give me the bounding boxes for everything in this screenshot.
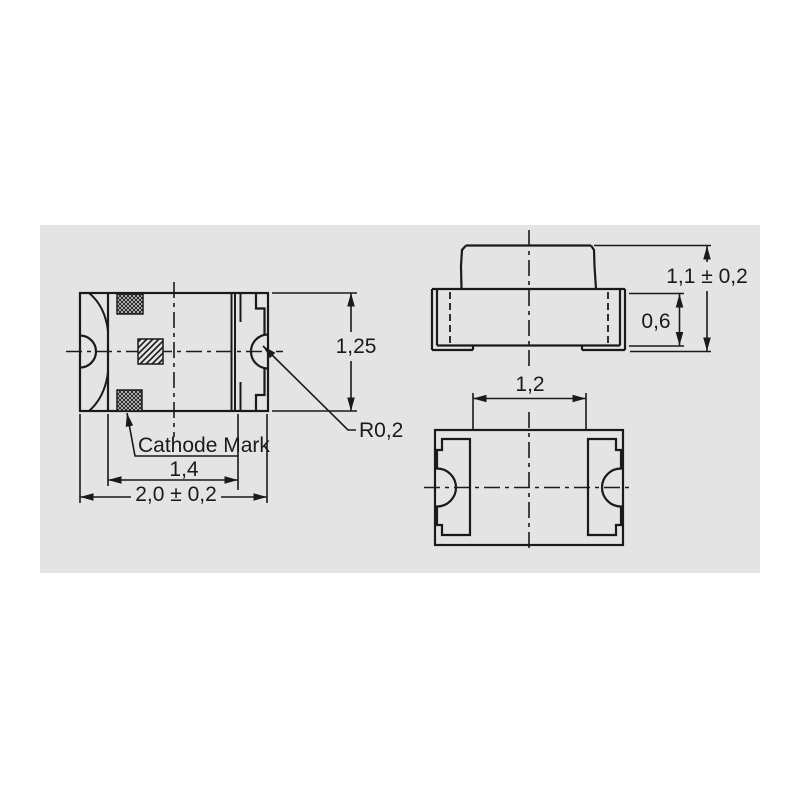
cathode-mark-square-top bbox=[117, 294, 143, 314]
screenshot-root: 1,25 R0,2 Cathode Mark 1,4 2,0 ± 0,2 bbox=[0, 0, 800, 800]
dim-label-overall-length: 2,0 ± 0,2 bbox=[135, 483, 217, 506]
cathode-mark-label: Cathode Mark bbox=[138, 434, 270, 457]
dim-label-overall-height: 1,1 ± 0,2 bbox=[666, 265, 748, 288]
dim-label-body-height: 0,6 bbox=[641, 310, 670, 333]
dim-label-radius: R0,2 bbox=[359, 419, 403, 442]
dim-label-terminal-span: 1,4 bbox=[169, 458, 199, 481]
dim-label-height: 1,25 bbox=[336, 335, 377, 358]
cathode-mark-square-bottom bbox=[117, 390, 142, 411]
technical-drawing: 1,25 R0,2 Cathode Mark 1,4 2,0 ± 0,2 bbox=[0, 0, 800, 800]
dim-label-pad-spacing: 1,2 bbox=[515, 373, 544, 396]
chip-die-square bbox=[138, 339, 163, 364]
drawing-canvas bbox=[40, 225, 760, 573]
